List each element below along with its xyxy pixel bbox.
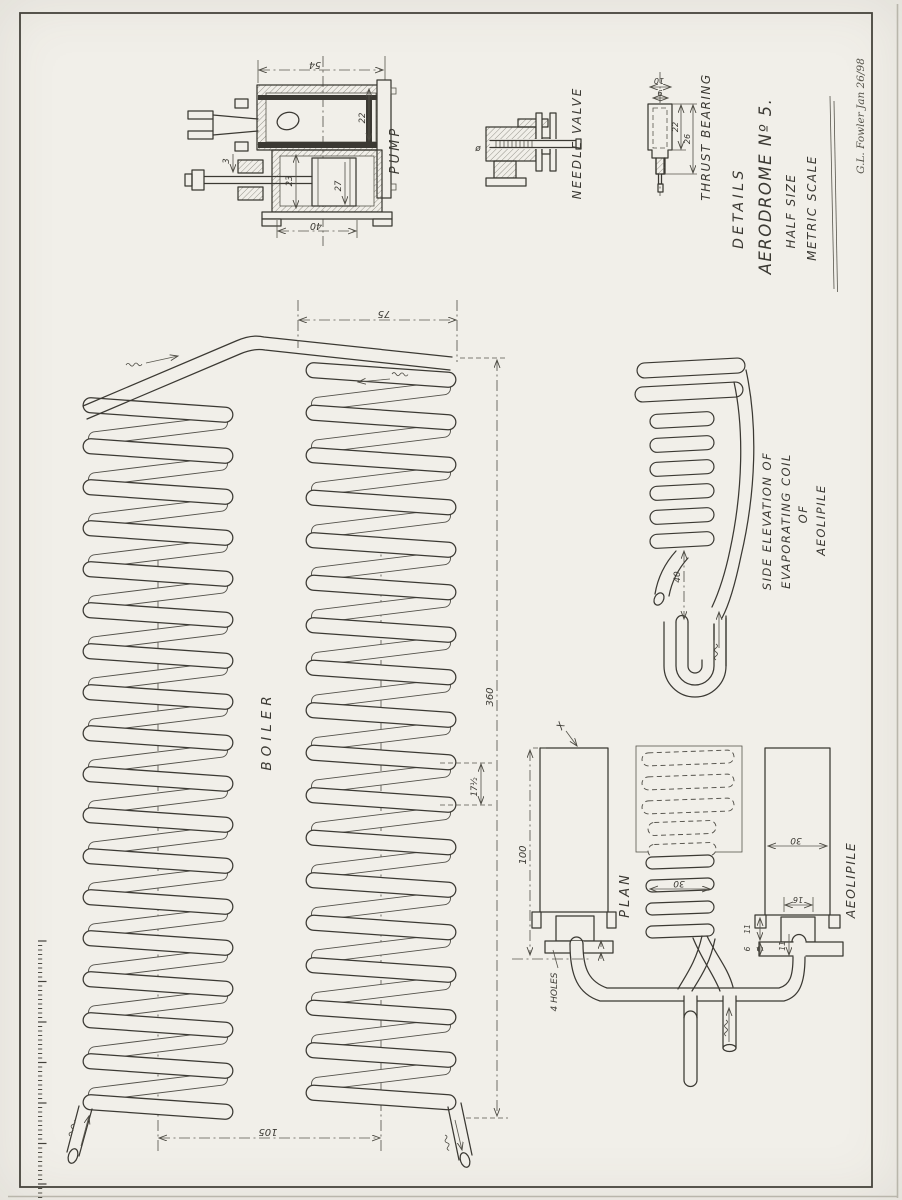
signature: G.L. Fowler Jan 26/98 — [855, 58, 867, 174]
dim-9: 9 — [657, 88, 662, 97]
dim-30-aeolipile: 30 — [790, 835, 802, 845]
dim-3: 3 — [222, 158, 232, 163]
dim-16: 16 — [793, 895, 803, 904]
dim-27: 27 — [334, 180, 344, 191]
evap-label-4: AEOLIPILE — [814, 484, 828, 556]
dim-26: 26 — [683, 134, 692, 144]
evap-label-2: EVAPORATING COIL — [779, 453, 793, 589]
dim-23: 23 — [285, 176, 295, 187]
dim-75: 75 — [378, 308, 391, 319]
dim-360: 360 — [485, 687, 496, 706]
boiler-right-coil-back — [311, 381, 452, 1091]
drawing-sheet: G.L. Fowler Jan 26/98 54 — [0, 0, 902, 1200]
title-scale: METRIC SCALE — [805, 155, 819, 261]
title-size: HALF SIZE — [784, 173, 798, 248]
evap-label-1: SIDE ELEVATION OF — [760, 452, 774, 590]
title-details: DETAILS — [731, 167, 747, 249]
dim-10: 10 — [654, 76, 664, 85]
dim-11-side: 11 — [743, 924, 752, 934]
dim-30-plan: 30 — [673, 878, 685, 888]
thrust-bearing-label: THRUST BEARING — [699, 73, 713, 200]
plan-aeolipile-drawing: X 100 4 HOLES 30 PLAN — [512, 720, 858, 1087]
aeolipile-label: AEOLIPILE — [843, 842, 858, 920]
dim-105: 105 — [258, 1126, 277, 1137]
pump-label: PUMP — [388, 126, 403, 174]
blueprint-canvas: G.L. Fowler Jan 26/98 54 — [0, 0, 902, 1200]
dim-100: 100 — [518, 845, 529, 864]
title-block: DETAILS AERODROME Nº 5. HALF SIZE METRIC… — [731, 96, 838, 292]
evaporating-coil-drawing: 40 SIDE ELEVATION OF EVAPORATING COIL OF… — [635, 358, 828, 697]
dim-17-5: 17½ — [470, 777, 480, 797]
dim-11-socket: 11 — [778, 941, 787, 951]
needle-valve-drawing: ø NEEDLE VALVE — [474, 87, 584, 200]
thrust-bearing-drawing: 10 9 22 26 THRUST BEARING — [648, 72, 713, 201]
pump-drawing: 54 — [185, 56, 403, 246]
boiler-right-outlet — [444, 1103, 472, 1169]
four-holes-note: 4 HOLES — [550, 972, 560, 1011]
boiler-left-outlet — [66, 1106, 92, 1165]
boiler-drawing: 75 360 17½ 105 BOILER — [66, 300, 508, 1169]
edge-ruler — [38, 940, 47, 1198]
needle-valve-dia-mark: ø — [474, 144, 481, 154]
boiler-label: BOILER — [259, 691, 275, 770]
evap-label-3: OF — [796, 505, 810, 524]
needle-valve-label: NEEDLE VALVE — [570, 87, 584, 200]
dim-40: 40 — [310, 220, 322, 231]
dim-22-tb: 22 — [671, 122, 680, 132]
title-name: AERODROME Nº 5. — [756, 98, 775, 276]
dim-54: 54 — [309, 59, 321, 70]
dim-40-evap: 40 — [673, 571, 683, 583]
dim-22-pump: 22 — [358, 113, 368, 124]
plan-label: PLAN — [618, 872, 633, 918]
boiler-left-coil-back — [88, 416, 229, 1102]
dim-6: 6 — [743, 946, 752, 951]
